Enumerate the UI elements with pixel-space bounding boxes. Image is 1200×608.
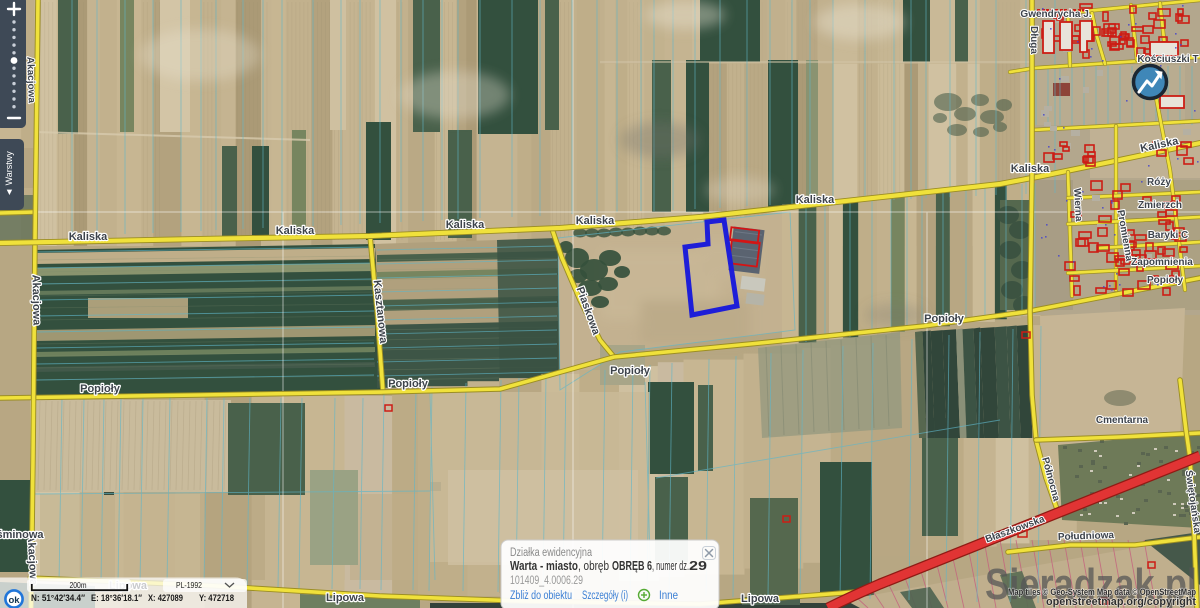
svg-text:Zapomnienia: Zapomnienia [1131,257,1193,268]
svg-text:Popioły: Popioły [924,313,965,325]
svg-text:Popioły: Popioły [1147,275,1184,286]
svg-text:PL-1992: PL-1992 [176,580,202,590]
svg-text:Warta - miasto: Warta - miasto [510,559,578,573]
svg-text:Szczegóły (i): Szczegóły (i) [582,590,628,602]
svg-text:X: 427089: X: 427089 [148,593,183,604]
svg-text:Akacjowa: Akacjowa [30,274,43,326]
svg-text:Akacjowa: Akacjowa [24,57,37,104]
svg-text:Kaliska: Kaliska [69,231,108,243]
svg-text:29: 29 [689,559,707,573]
svg-text:Kaliska: Kaliska [446,219,485,231]
svg-text:200m: 200m [70,580,87,590]
svg-text:Zbliż do obiektu: Zbliż do obiektu [510,590,572,602]
svg-text:Kaliska: Kaliska [1011,163,1050,175]
svg-text:Y: 472718: Y: 472718 [199,593,234,604]
svg-text:Lipowa: Lipowa [326,592,365,604]
svg-text:Popioły: Popioły [80,383,121,395]
svg-text:◄ Warstwy: ◄ Warstwy [4,151,14,197]
svg-text:, numer dz.: , numer dz. [652,559,689,573]
svg-text:Popioły: Popioły [610,365,651,377]
svg-text:Baryki C: Baryki C [1148,230,1189,241]
svg-text:openstreetmap.org/copyright: openstreetmap.org/copyright [1046,596,1196,608]
svg-text:Wierna: Wierna [1071,188,1084,222]
svg-text:N: 51°42′34.4″: N: 51°42′34.4″ [31,593,85,604]
svg-text:Inne: Inne [659,590,678,602]
svg-text:Cmentarna: Cmentarna [1096,415,1149,426]
svg-text:Kaliska: Kaliska [796,194,835,206]
svg-text:Zmierzch: Zmierzch [1138,200,1182,211]
svg-text:Południowa: Południowa [1058,530,1115,543]
svg-text:Popioły: Popioły [388,378,429,390]
svg-text:Działka ewidencyjna: Działka ewidencyjna [510,547,592,559]
svg-text:, obręb: , obręb [578,559,609,573]
svg-text:Róży: Róży [1147,177,1171,188]
svg-text:śminowa: śminowa [0,529,44,541]
svg-text:Długa: Długa [1028,26,1039,54]
svg-text:101409_4.0006.29: 101409_4.0006.29 [510,575,583,587]
svg-text:E: 18°36′18.1″: E: 18°36′18.1″ [91,593,142,604]
svg-text:OBRĘB 6: OBRĘB 6 [612,559,652,573]
svg-text:Gwendrycha J.: Gwendrycha J. [1020,9,1091,20]
svg-text:Lipowa: Lipowa [741,593,780,605]
svg-text:Kaliska: Kaliska [276,225,315,237]
svg-text:ok: ok [8,595,20,606]
svg-text:Kaliska: Kaliska [576,215,615,227]
svg-text:Kościuszki T: Kościuszki T [1137,54,1198,65]
